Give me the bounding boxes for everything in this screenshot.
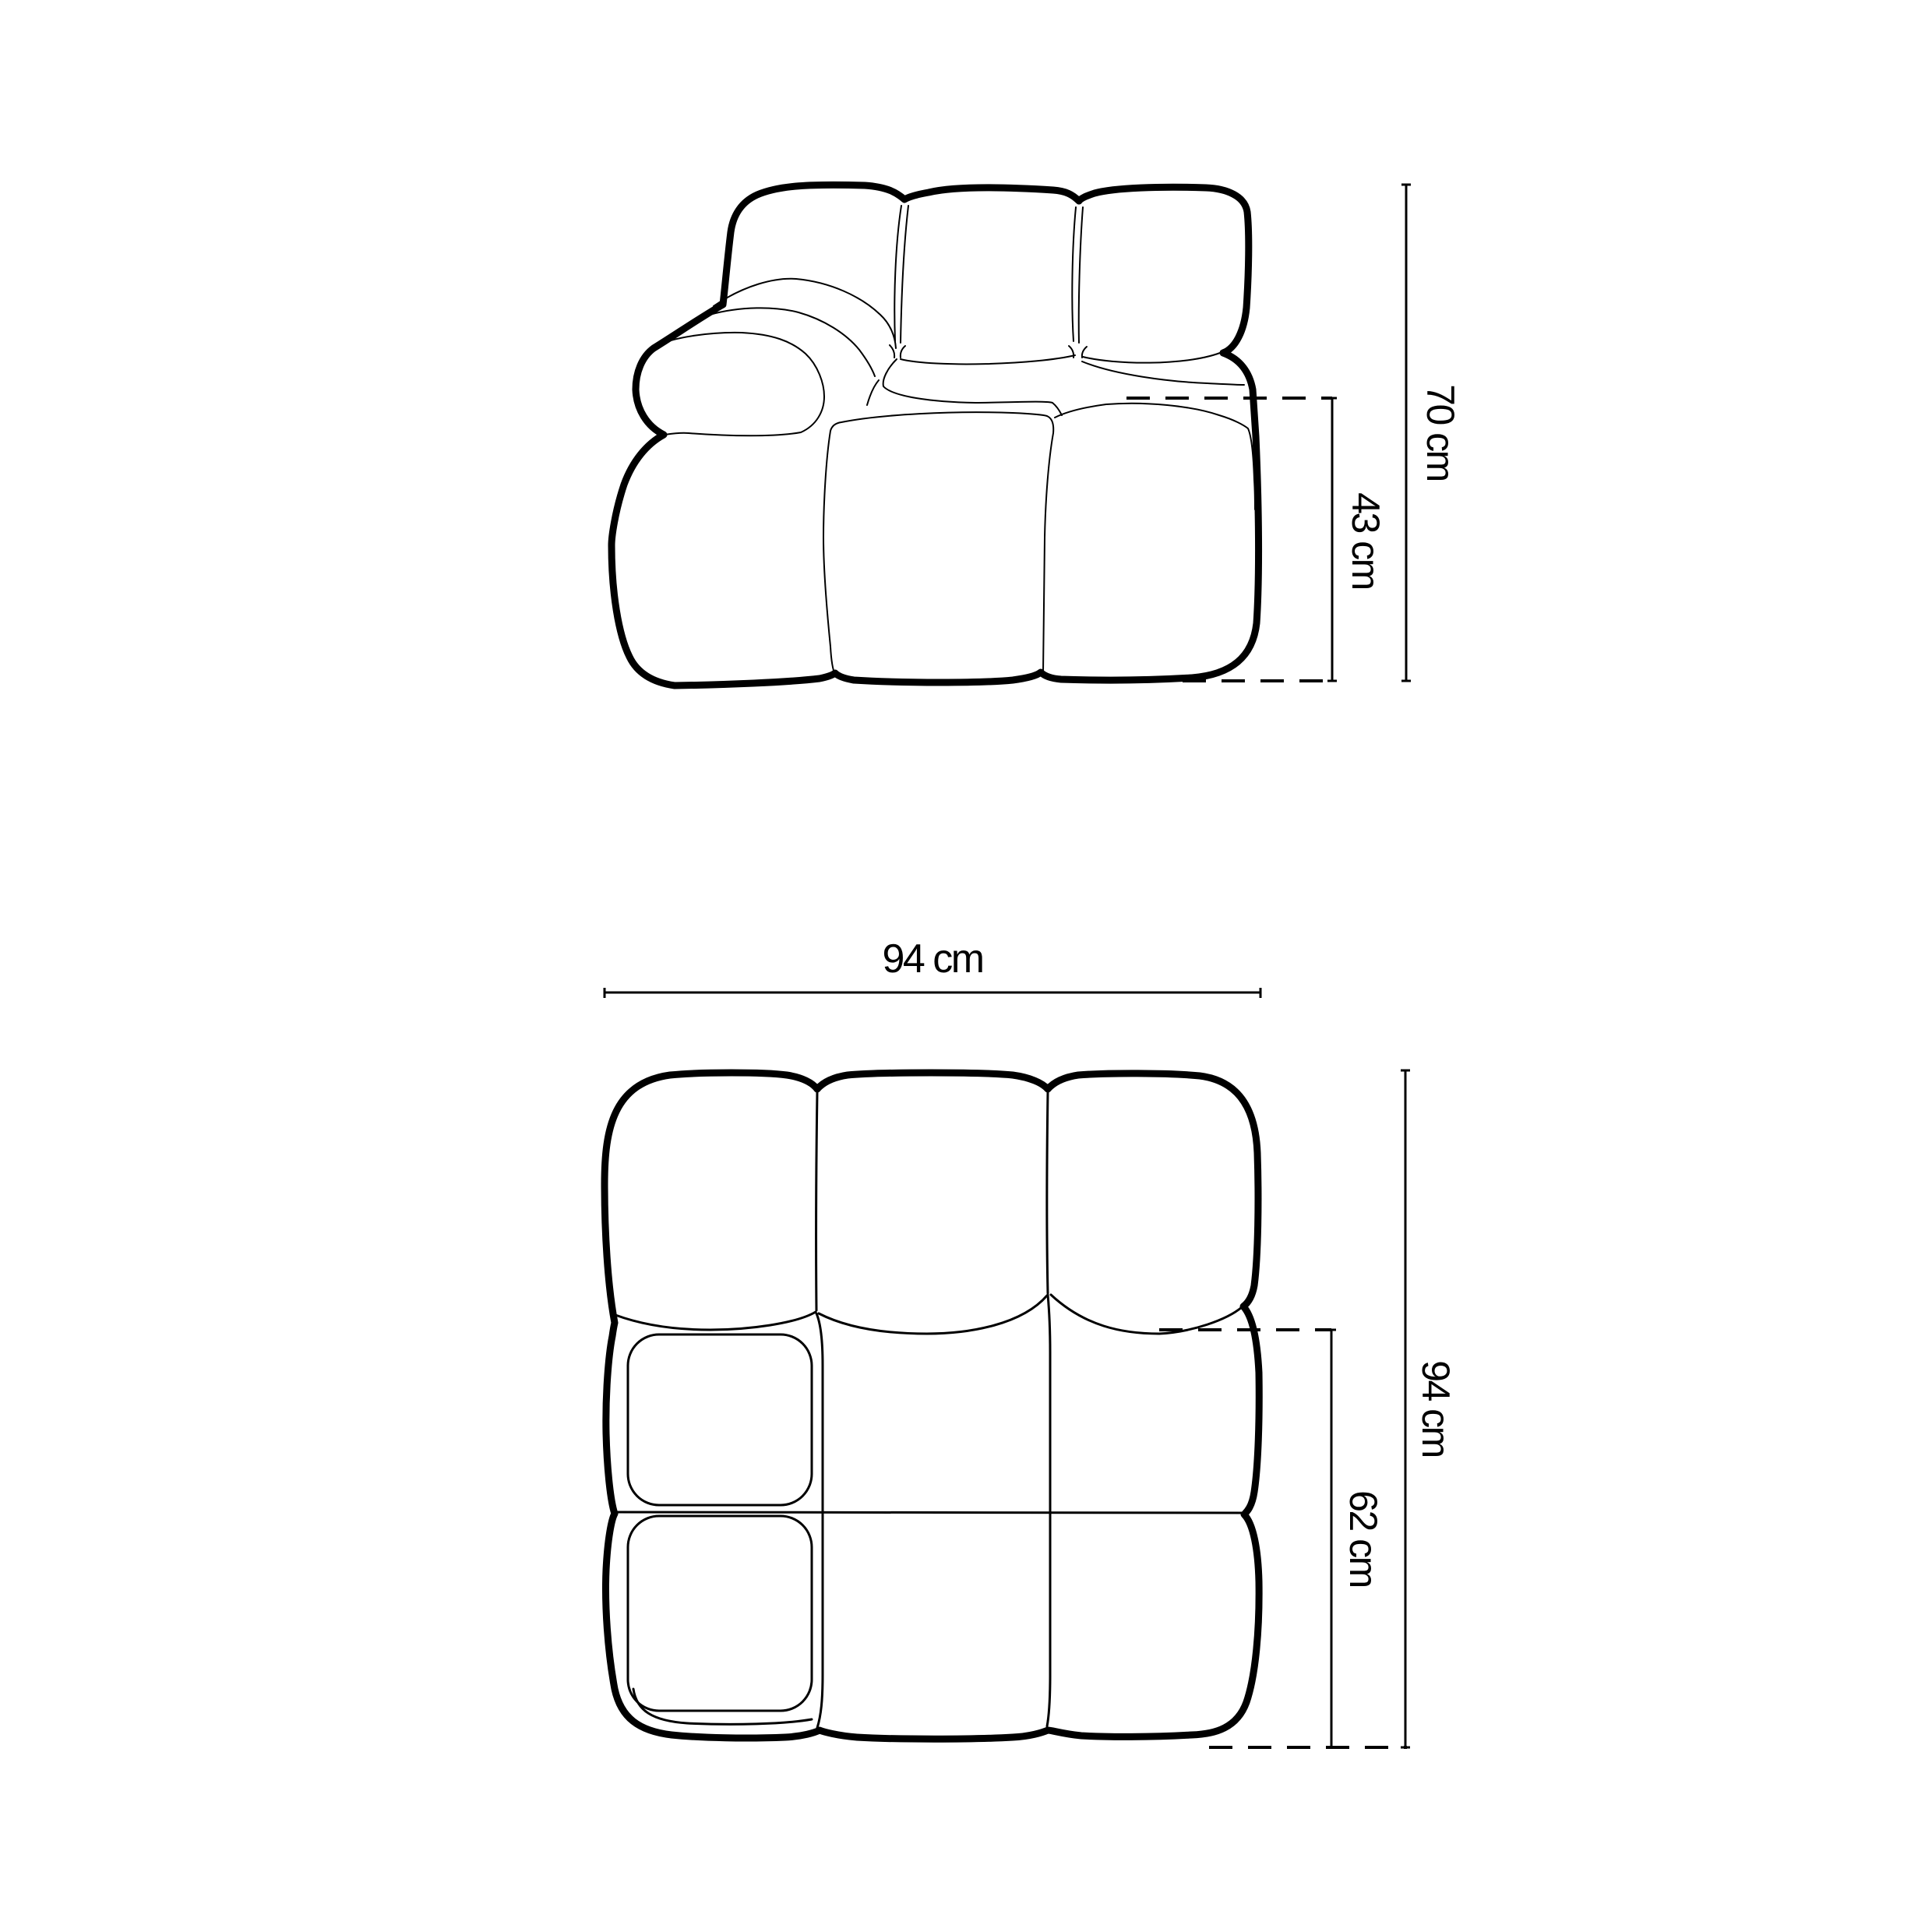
svg-text:94 cm: 94 cm bbox=[882, 936, 982, 982]
svg-text:62 cm: 62 cm bbox=[1341, 1490, 1385, 1587]
svg-text:43 cm: 43 cm bbox=[1344, 492, 1387, 589]
svg-text:94 cm: 94 cm bbox=[1414, 1360, 1458, 1457]
svg-text:70 cm: 70 cm bbox=[1419, 384, 1462, 481]
